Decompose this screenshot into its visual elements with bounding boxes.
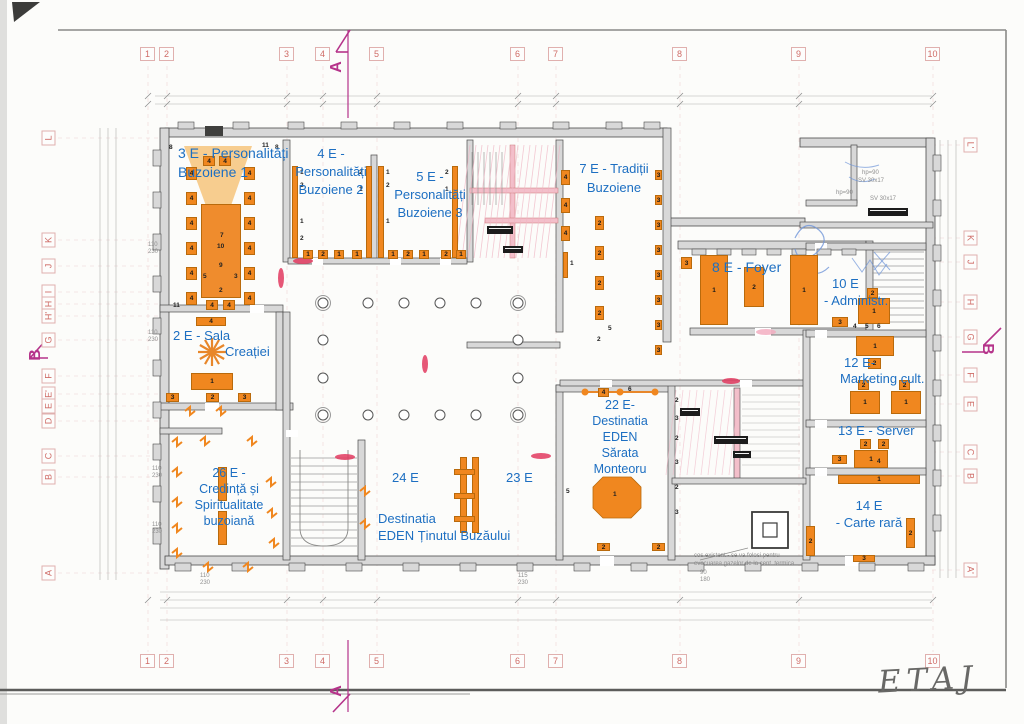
room-label-12e-line-1: 12 E- xyxy=(844,356,944,370)
furniture-table xyxy=(201,204,241,298)
furniture-block: 1 xyxy=(456,250,466,259)
pilaster xyxy=(153,192,161,208)
dimension-text: 230 xyxy=(518,580,528,586)
pilaster xyxy=(933,515,941,531)
label-box-text-line xyxy=(735,453,749,454)
pilaster xyxy=(933,245,941,261)
furniture-strip xyxy=(292,166,298,258)
dimension-text: 230 xyxy=(152,529,162,535)
column xyxy=(318,410,328,420)
furniture-number: 2 xyxy=(597,336,601,343)
grid-letter-left-L: L xyxy=(42,131,56,146)
hatch-line xyxy=(522,145,536,258)
column xyxy=(399,298,409,308)
furniture-block: 4 xyxy=(598,388,609,397)
room-label-26e-line-3: Spiritualitate xyxy=(178,499,280,512)
rail-node xyxy=(652,389,659,396)
wall xyxy=(672,478,806,484)
door-opening xyxy=(250,305,264,313)
furniture-block: 2 xyxy=(652,543,665,551)
pilaster xyxy=(153,150,161,166)
furniture-block: 3 xyxy=(655,195,662,205)
column xyxy=(471,410,481,420)
furniture-number: 1 xyxy=(570,260,574,267)
grid-number-bottom-4: 4 xyxy=(315,654,330,668)
grid-letter-left-J: J xyxy=(42,259,56,274)
grid-number-bottom-1: 1 xyxy=(140,654,155,668)
dimension-text: SV 30x17 xyxy=(858,178,884,184)
hatch-line xyxy=(540,145,554,258)
pilaster xyxy=(842,249,856,255)
entrance-door xyxy=(205,126,223,136)
label-box-text-line xyxy=(489,228,511,229)
furniture-block: 2 xyxy=(403,250,413,259)
dimension-text: 230 xyxy=(148,337,158,343)
furniture-number: 11 xyxy=(173,302,180,309)
wall-exterior-top-right xyxy=(800,138,933,147)
grid-number-bottom-3: 3 xyxy=(279,654,294,668)
furniture-block: 3 xyxy=(655,220,662,230)
label-box-text-line xyxy=(870,210,906,211)
furniture-number: 2 xyxy=(300,235,304,242)
column xyxy=(318,373,328,383)
room-label-22e-line-1: 22 E- xyxy=(578,399,662,412)
furniture-number: 1 xyxy=(613,491,617,498)
pilaster xyxy=(288,122,304,129)
furniture-number: 3 xyxy=(675,459,679,466)
grid-letter-right-L': L' xyxy=(964,138,978,153)
grid-letter-right-C: C xyxy=(964,445,978,460)
furniture-block: 3 xyxy=(655,345,662,355)
furniture-block: 2 xyxy=(441,250,451,259)
furniture-block: 2 xyxy=(318,250,328,259)
pilaster xyxy=(153,276,161,292)
pilaster xyxy=(341,122,357,129)
furniture-block: 2 xyxy=(806,526,815,556)
grid-number-top-4: 4 xyxy=(315,47,330,61)
furniture-number: 6 xyxy=(877,323,881,330)
furniture-block: 1 xyxy=(388,250,398,259)
plan-label-box xyxy=(714,436,748,444)
column xyxy=(471,298,481,308)
grid-number-bottom-6: 6 xyxy=(510,654,525,668)
furniture-block: 1 xyxy=(419,250,429,259)
dimension-text: 230 xyxy=(200,580,210,586)
wall xyxy=(160,403,293,410)
column xyxy=(435,298,445,308)
grid-letter-right-E: E xyxy=(964,397,978,412)
pilaster xyxy=(933,335,941,351)
door-opening xyxy=(312,258,323,265)
dimension-text: hp=90 xyxy=(862,170,879,176)
door-opening xyxy=(390,258,401,265)
furniture-block: 3 xyxy=(238,393,251,402)
furniture-number: 10 xyxy=(217,243,224,250)
furniture-block: 4 xyxy=(244,267,255,280)
label-box-text-line xyxy=(716,438,746,439)
grid-number-top-8: 8 xyxy=(672,47,687,61)
dimension-text: 180 xyxy=(700,577,710,583)
section-marker-b-right: B xyxy=(978,343,996,355)
furniture-number: 6 xyxy=(628,386,632,393)
furniture-block: 3 xyxy=(655,270,662,280)
octagon-exhibit xyxy=(593,477,641,518)
pilaster xyxy=(767,249,781,255)
furniture-number: 5 xyxy=(566,488,570,495)
hatch-line xyxy=(528,145,542,258)
furniture-number: 2 xyxy=(675,484,679,491)
door-opening xyxy=(286,430,298,437)
pilaster xyxy=(346,563,362,571)
furniture-block: 1 xyxy=(838,475,920,484)
furniture-number: 8 xyxy=(169,144,173,151)
furniture-number: 3 xyxy=(675,415,679,422)
column xyxy=(513,373,523,383)
wall xyxy=(160,428,222,434)
room-label-10e-line-2: - Administr. xyxy=(824,294,924,308)
grid-letter-left-A: A xyxy=(42,566,56,581)
furniture-number: 2 xyxy=(219,287,223,294)
door-opening xyxy=(600,380,612,387)
wall-display-wedge xyxy=(269,539,279,547)
plan-label-box xyxy=(680,408,700,416)
pilaster xyxy=(153,402,161,418)
grid-letter-right-H: H xyxy=(964,295,978,310)
furniture-block: 2 xyxy=(860,439,871,449)
note-line-2: evacuarea gazelor de la cent. termica xyxy=(694,560,794,568)
pilaster xyxy=(153,444,161,460)
wall-exterior-left xyxy=(160,128,169,569)
column xyxy=(363,298,373,308)
pilaster xyxy=(933,200,941,216)
furniture-block: 2 xyxy=(597,543,610,551)
label-box-text-line xyxy=(682,410,698,411)
furniture-block: 1 xyxy=(850,391,880,414)
section-marker-a-top: A xyxy=(328,61,346,73)
pilaster xyxy=(233,122,249,129)
wall xyxy=(556,385,563,560)
furniture-number: 1 xyxy=(300,218,304,225)
door-opening xyxy=(440,258,451,265)
pilaster xyxy=(908,563,924,571)
pilaster xyxy=(644,122,660,129)
grid-number-bottom-9: 9 xyxy=(791,654,806,668)
furniture-block: 3 xyxy=(655,295,662,305)
red-marker xyxy=(278,268,284,288)
grid-number-bottom-8: 8 xyxy=(672,654,687,668)
furniture-block: 4 xyxy=(186,267,197,280)
room-label-14e-line-2: - Carte rară xyxy=(826,516,912,530)
pilaster xyxy=(447,122,463,129)
pilaster xyxy=(403,563,419,571)
grid-number-top-2: 2 xyxy=(159,47,174,61)
room-label-22e-line-2: Destinatia xyxy=(578,415,662,428)
grid-number-top-6: 6 xyxy=(510,47,525,61)
pilaster xyxy=(517,563,533,571)
grid-letter-left-F: F xyxy=(42,369,56,384)
grid-letter-left-B: B xyxy=(42,470,56,485)
grid-letter-right-G: G xyxy=(964,330,978,345)
plan-label-box xyxy=(503,246,523,253)
furniture-number: 4 xyxy=(877,458,881,465)
pilaster xyxy=(574,563,590,571)
wall xyxy=(276,312,283,410)
wall-new-pink xyxy=(485,218,558,223)
pilaster xyxy=(802,563,818,571)
pilaster xyxy=(553,122,569,129)
room-label-5e-line-2: Personalități xyxy=(377,188,483,202)
pilaster xyxy=(153,486,161,502)
wall xyxy=(800,222,933,228)
grid-number-top-1: 1 xyxy=(140,47,155,61)
wall-new-pink xyxy=(734,388,740,480)
furniture-number: 5 xyxy=(865,323,869,330)
dimension-text: 110 xyxy=(200,573,210,579)
furniture-number: 3 xyxy=(234,273,238,280)
furniture-block: 4 xyxy=(186,292,197,305)
handwritten-floor-title: ETAJ xyxy=(877,659,979,700)
wall xyxy=(560,380,806,386)
wall-notch xyxy=(665,218,805,226)
furniture-strip xyxy=(366,166,372,258)
wall xyxy=(668,385,675,560)
grid-letter-right-B: B xyxy=(964,469,978,484)
plan-label-box xyxy=(487,226,513,234)
furniture-block: 1 xyxy=(856,336,894,356)
furniture-number: 2 xyxy=(675,435,679,442)
room-label-eden-line-1: Destinatia xyxy=(378,512,546,526)
room-label-14e-line-1: 14 E xyxy=(826,499,912,513)
room-label-24e-line-1: 24 E xyxy=(392,471,436,485)
hatch-line xyxy=(516,145,530,258)
room-label-5e-line-1: 5 E - xyxy=(377,170,483,184)
grid-letter-left-E: E xyxy=(42,399,56,414)
room-label-2e-line-2: Creației xyxy=(225,345,335,359)
dimension-text: 115 xyxy=(518,573,528,579)
room-label-2e-line-1: 2 E - Sala xyxy=(173,329,283,343)
column xyxy=(318,298,328,308)
wall-display-wedge xyxy=(247,437,257,445)
pilaster xyxy=(289,563,305,571)
pilaster xyxy=(933,155,941,171)
grid-number-top-7: 7 xyxy=(548,47,563,61)
hatch-line xyxy=(534,145,548,258)
column xyxy=(435,410,445,420)
room-label-4e-line-3: Buzoiene 2 xyxy=(284,183,378,197)
grid-number-top-5: 5 xyxy=(369,47,384,61)
section-marker-b-left: B xyxy=(27,349,45,361)
furniture-block: 4 xyxy=(206,300,218,310)
furniture-block: 1 xyxy=(352,250,362,259)
door-opening xyxy=(815,420,827,428)
furniture-number: 9 xyxy=(219,262,223,269)
furniture-number: 5 xyxy=(203,273,207,280)
grid-number-top-9: 9 xyxy=(791,47,806,61)
pilaster xyxy=(933,290,941,306)
furniture-block: 2 xyxy=(595,306,604,320)
room-label-26e-line-1: 26 E - xyxy=(178,467,280,480)
room-label-26e-line-4: buzoiană xyxy=(178,515,280,528)
furniture-number: 7 xyxy=(220,232,224,239)
grid-letter-left-D: D xyxy=(42,414,56,429)
grid-letter-left-G: G xyxy=(42,333,56,348)
wall-exterior-top xyxy=(165,128,667,137)
grid-number-bottom-7: 7 xyxy=(548,654,563,668)
grid-letter-left-K: K xyxy=(42,233,56,248)
column xyxy=(399,410,409,420)
room-label-4e-line-1: 4 E - xyxy=(284,147,378,161)
door-opening xyxy=(600,556,614,566)
furniture-block: 3 xyxy=(832,317,848,327)
furniture-block: 2 xyxy=(878,439,889,449)
pilaster xyxy=(606,122,622,129)
furniture-block: 2 xyxy=(595,276,604,290)
dimension-text: 90 xyxy=(700,570,707,576)
room-label-22e-line-4: Sărata xyxy=(578,447,662,460)
wall-new-pink xyxy=(470,188,558,193)
grid-number-bottom-2: 2 xyxy=(159,654,174,668)
wall xyxy=(806,200,857,206)
room-label-7e-line-2: Buzoiene xyxy=(566,181,662,195)
rail-node xyxy=(617,389,624,396)
dimension-text: 110 xyxy=(148,330,158,336)
plan-label-box xyxy=(733,451,751,458)
pink-marker xyxy=(756,329,776,335)
furniture-block: 1 xyxy=(334,250,344,259)
grid-letter-right-J: J xyxy=(964,255,978,270)
pilaster xyxy=(460,563,476,571)
door-opening xyxy=(815,330,827,338)
chimney-flue xyxy=(763,523,777,537)
room-label-7e-line-1: 7 E - Tradiții xyxy=(566,162,662,176)
red-marker xyxy=(422,355,428,373)
furniture-block: 3 xyxy=(655,320,662,330)
furniture-block: 4 xyxy=(561,226,570,241)
furniture-block: 3 xyxy=(166,393,179,402)
furniture-strip xyxy=(454,469,475,475)
furniture-block: 3 xyxy=(832,455,847,464)
pilaster xyxy=(933,470,941,486)
furniture-block: 1 xyxy=(303,250,313,259)
scanned-floor-plan-page: 1234567891012345678910LKJIHH'GFE'EDCBAL'… xyxy=(0,0,1024,724)
wall-exterior-bottom xyxy=(165,556,935,565)
red-marker xyxy=(335,454,355,460)
red-marker xyxy=(531,453,551,459)
column xyxy=(363,410,373,420)
chimney-note: cos existent - se va folosi pentru evacu… xyxy=(694,552,794,568)
furniture-block: 4 xyxy=(244,192,255,205)
furniture-number: 3 xyxy=(675,509,679,516)
room-label-22e-line-3: EDEN xyxy=(578,431,662,444)
room-label-8e-line-1: 8 E - Foyer xyxy=(712,260,832,275)
pilaster xyxy=(178,122,194,129)
plan-label-box xyxy=(868,208,908,216)
room-label-eden-line-2: EDEN Ținutul Buzăului xyxy=(378,529,546,543)
column xyxy=(318,335,328,345)
red-marker xyxy=(722,378,740,384)
dimension-text: hp=90 xyxy=(836,190,853,196)
door-opening xyxy=(740,380,752,387)
furniture-block: 4 xyxy=(186,242,197,255)
furniture-block: 3 xyxy=(655,245,662,255)
grid-letter-right-A': A' xyxy=(964,563,978,578)
door-opening xyxy=(815,468,827,476)
pilaster xyxy=(742,249,756,255)
furniture-block: 4 xyxy=(561,198,570,213)
furniture-number: 5 xyxy=(608,325,612,332)
pilaster xyxy=(631,563,647,571)
scan-corner-mark xyxy=(12,2,40,22)
room-label-12e-line-2: Marketing cult. xyxy=(840,372,940,386)
furniture-strip xyxy=(454,493,475,499)
room-label-23e-line-1: 23 E xyxy=(506,471,550,485)
grid-number-top-3: 3 xyxy=(279,47,294,61)
label-box-text-line xyxy=(505,248,521,249)
scan-edge-shadow xyxy=(0,0,7,724)
furniture-strip xyxy=(563,252,568,278)
note-line-1: cos existent - se va folosi pentru xyxy=(694,552,794,560)
furniture-block: 4 xyxy=(244,292,255,305)
dimension-text: 110 xyxy=(152,522,162,528)
wall-display-wedge xyxy=(200,437,210,445)
furniture-block: 3 xyxy=(681,257,692,269)
grid-letter-right-K: K xyxy=(964,231,978,246)
section-marker-a-bottom: A xyxy=(328,685,346,697)
pilaster xyxy=(859,563,875,571)
room-label-22e-line-5: Monteoru xyxy=(578,463,662,476)
furniture-block: 2 xyxy=(206,393,219,402)
furniture-block: 4 xyxy=(186,217,197,230)
grid-letter-left-C: C xyxy=(42,449,56,464)
column xyxy=(513,298,523,308)
pilaster xyxy=(500,122,516,129)
room-label-13e-line-1: 13 E - Server xyxy=(838,424,942,438)
room-label-26e-line-2: Credință și xyxy=(178,483,280,496)
grid-number-bottom-5: 5 xyxy=(369,654,384,668)
furniture-block: 4 xyxy=(186,192,197,205)
pilaster xyxy=(175,563,191,571)
room-label-10e-line-1: 10 E xyxy=(832,277,932,291)
furniture-block: 4 xyxy=(244,217,255,230)
furniture-block: 3 xyxy=(853,555,875,562)
column xyxy=(513,335,523,345)
furniture-block: 1 xyxy=(854,450,888,468)
dimension-text: SV 30x17 xyxy=(870,196,896,202)
wall xyxy=(663,128,671,342)
wall xyxy=(358,440,365,560)
pilaster xyxy=(394,122,410,129)
wall-display-wedge xyxy=(172,438,182,446)
furniture-block: 4 xyxy=(244,242,255,255)
furniture-number: 4 xyxy=(853,323,857,330)
room-label-4e-line-2: Personalități xyxy=(284,165,378,179)
dimension-text: 230 xyxy=(152,473,162,479)
hatch-line xyxy=(492,145,506,258)
furniture-block: 4 xyxy=(223,300,235,310)
grid-letter-right-F: F xyxy=(964,368,978,383)
furniture-block: 2 xyxy=(595,216,604,230)
column xyxy=(513,410,523,420)
furniture-number: 2 xyxy=(675,397,679,404)
dimension-text: 230 xyxy=(148,249,158,255)
hatch-line xyxy=(486,145,500,258)
furniture-block: 1 xyxy=(191,373,233,390)
furniture-block: 4 xyxy=(196,317,226,326)
grid-letter-left-H': H' xyxy=(42,309,56,324)
pilaster xyxy=(153,360,161,376)
rail-node xyxy=(582,389,589,396)
grid-number-top-10: 10 xyxy=(925,47,940,61)
